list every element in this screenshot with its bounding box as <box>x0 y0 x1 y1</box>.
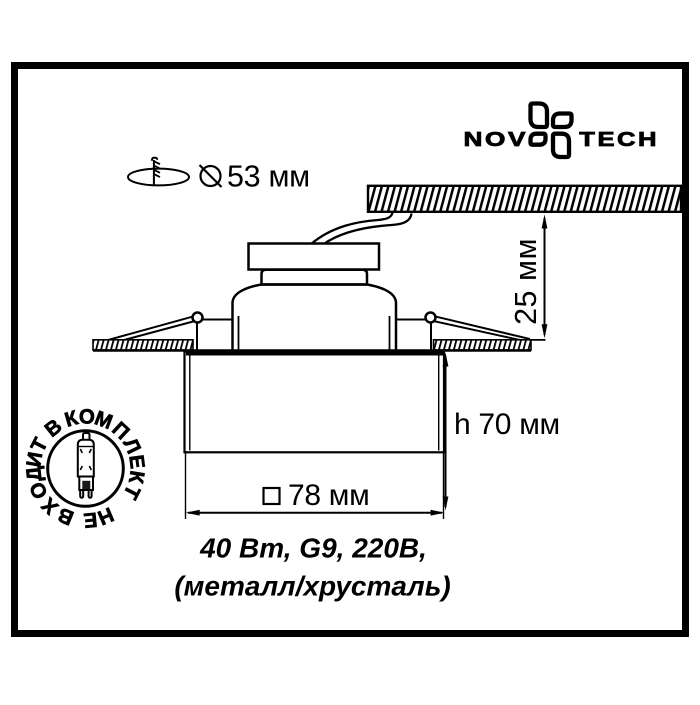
svg-text:(металл/хрусталь): (металл/хрусталь) <box>174 571 450 602</box>
svg-text:78 мм: 78 мм <box>288 479 369 512</box>
svg-text:40 Вт, G9, 220В,: 40 Вт, G9, 220В, <box>199 533 427 564</box>
svg-text:25 мм: 25 мм <box>509 238 543 325</box>
svg-text:h 70 мм: h 70 мм <box>454 408 560 441</box>
svg-text:NOV: NOV <box>464 128 529 151</box>
svg-text:53 мм: 53 мм <box>227 160 310 194</box>
svg-text:TECH: TECH <box>579 127 659 150</box>
svg-text:Е: Е <box>83 508 99 532</box>
